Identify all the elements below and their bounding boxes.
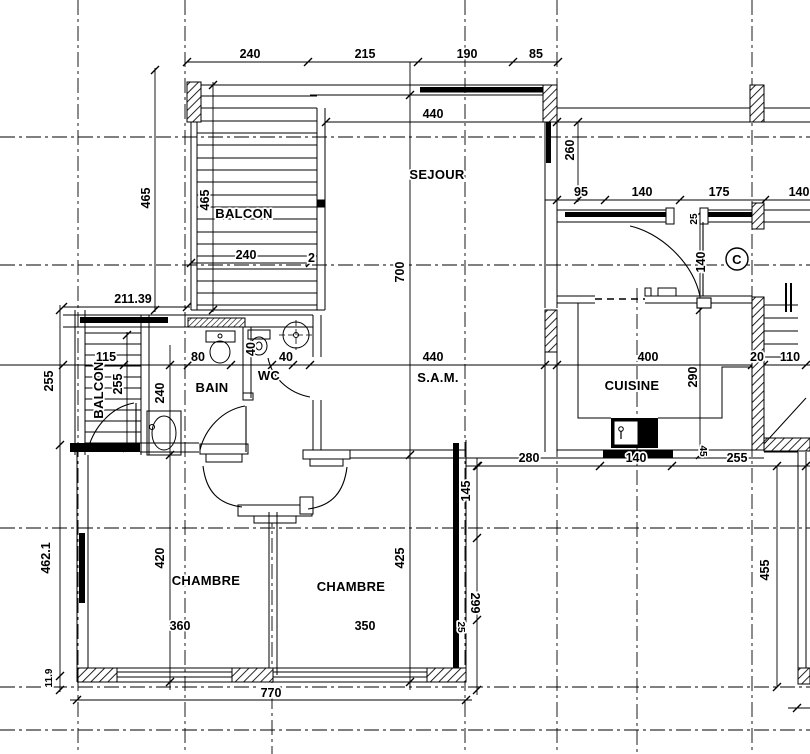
floor-plan-canvas: C SEJOUR BALCON BALCON BAIN WC S.A.M. CU… bbox=[0, 0, 810, 754]
floor-plan-page: C SEJOUR BALCON BALCON BAIN WC S.A.M. CU… bbox=[0, 0, 810, 754]
dim-sejour-width: 440 bbox=[423, 107, 444, 121]
dim-balcon-465a: 465 bbox=[139, 188, 153, 209]
dim-balcon-465b: 465 bbox=[198, 190, 212, 211]
dim-door-25: 25 bbox=[689, 213, 700, 225]
dim-balcon-2: 2 bbox=[308, 251, 315, 265]
dim-left-255a: 255 bbox=[42, 371, 56, 392]
dim-left-115: 115 bbox=[96, 350, 116, 364]
dim-entry-140a: 140 bbox=[632, 185, 653, 199]
dim-ter-455: 455 bbox=[758, 560, 772, 581]
reference-mark-label: C bbox=[732, 252, 742, 267]
dim-sejour-height: 700 bbox=[393, 262, 407, 283]
dim-ch-360: 360 bbox=[170, 619, 191, 633]
dim-ch-4621: 462.1 bbox=[39, 542, 53, 573]
bathtub-fixture bbox=[147, 411, 181, 455]
dim-ter-140: 140 bbox=[626, 451, 647, 465]
room-label-balcon-left: BALCON bbox=[91, 361, 106, 418]
dim-entry-260: 260 bbox=[563, 140, 577, 161]
dim-left-211: 211.39 bbox=[114, 292, 152, 306]
dim-ch-420: 420 bbox=[153, 548, 167, 569]
room-label-balcon-top: BALCON bbox=[215, 206, 272, 221]
dim-ch-350: 350 bbox=[355, 619, 376, 633]
dim-top-215: 215 bbox=[355, 47, 376, 61]
dim-entry-95: 95 bbox=[574, 185, 588, 199]
dim-entry-175: 175 bbox=[709, 185, 730, 199]
washbasin-fixture bbox=[279, 320, 313, 350]
dim-top-85: 85 bbox=[529, 47, 543, 61]
dim-right-20: 20 bbox=[750, 350, 764, 364]
room-label-sejour: SEJOUR bbox=[409, 167, 465, 182]
dim-bottom-119: 11.9 bbox=[44, 668, 55, 687]
dim-left-240: 240 bbox=[153, 383, 167, 404]
dim-ter-45: 45 bbox=[697, 445, 708, 457]
dim-right-110: 110 bbox=[780, 350, 800, 364]
room-labels: SEJOUR BALCON BALCON BAIN WC S.A.M. CUIS… bbox=[91, 167, 659, 594]
dim-ter-299: 299 bbox=[468, 593, 482, 614]
dim-left-255b: 255 bbox=[111, 374, 125, 395]
room-label-bain: BAIN bbox=[196, 380, 229, 395]
room-label-chambre1: CHAMBRE bbox=[172, 573, 241, 588]
dim-bottom-770: 770 bbox=[261, 686, 282, 700]
balcony-deck-lines bbox=[197, 96, 317, 305]
dim-ter-280: 280 bbox=[519, 451, 540, 465]
dim-ch-425: 425 bbox=[393, 548, 407, 569]
dim-bain-80: 80 bbox=[191, 350, 205, 364]
kitchen-sink-fixture bbox=[611, 418, 658, 448]
dim-top-240: 240 bbox=[240, 47, 261, 61]
dim-cuisine-290: 290 bbox=[686, 367, 700, 388]
dim-ter-145: 145 bbox=[459, 481, 473, 502]
dim-entry-140b: 140 bbox=[789, 185, 810, 199]
dim-balcon-240: 240 bbox=[236, 248, 257, 262]
room-label-wc: WC bbox=[258, 368, 281, 383]
room-label-sam: S.A.M. bbox=[417, 370, 459, 385]
toilet-fixture bbox=[206, 331, 235, 363]
dim-door-140: 140 bbox=[694, 252, 708, 273]
dim-ter-25: 25 bbox=[455, 621, 466, 633]
kitchen-counter bbox=[578, 303, 752, 418]
dim-cuisine-400: 400 bbox=[638, 350, 659, 364]
dim-wc-40: 40 bbox=[244, 342, 258, 356]
reference-mark-c: C bbox=[726, 248, 748, 270]
room-label-chambre2: CHAMBRE bbox=[317, 579, 386, 594]
dim-top-190: 190 bbox=[457, 47, 478, 61]
dim-bain-40: 40 bbox=[279, 350, 293, 364]
room-label-cuisine: CUISINE bbox=[605, 378, 660, 393]
dim-sam-440: 440 bbox=[423, 350, 444, 364]
dim-ter-255: 255 bbox=[727, 451, 748, 465]
